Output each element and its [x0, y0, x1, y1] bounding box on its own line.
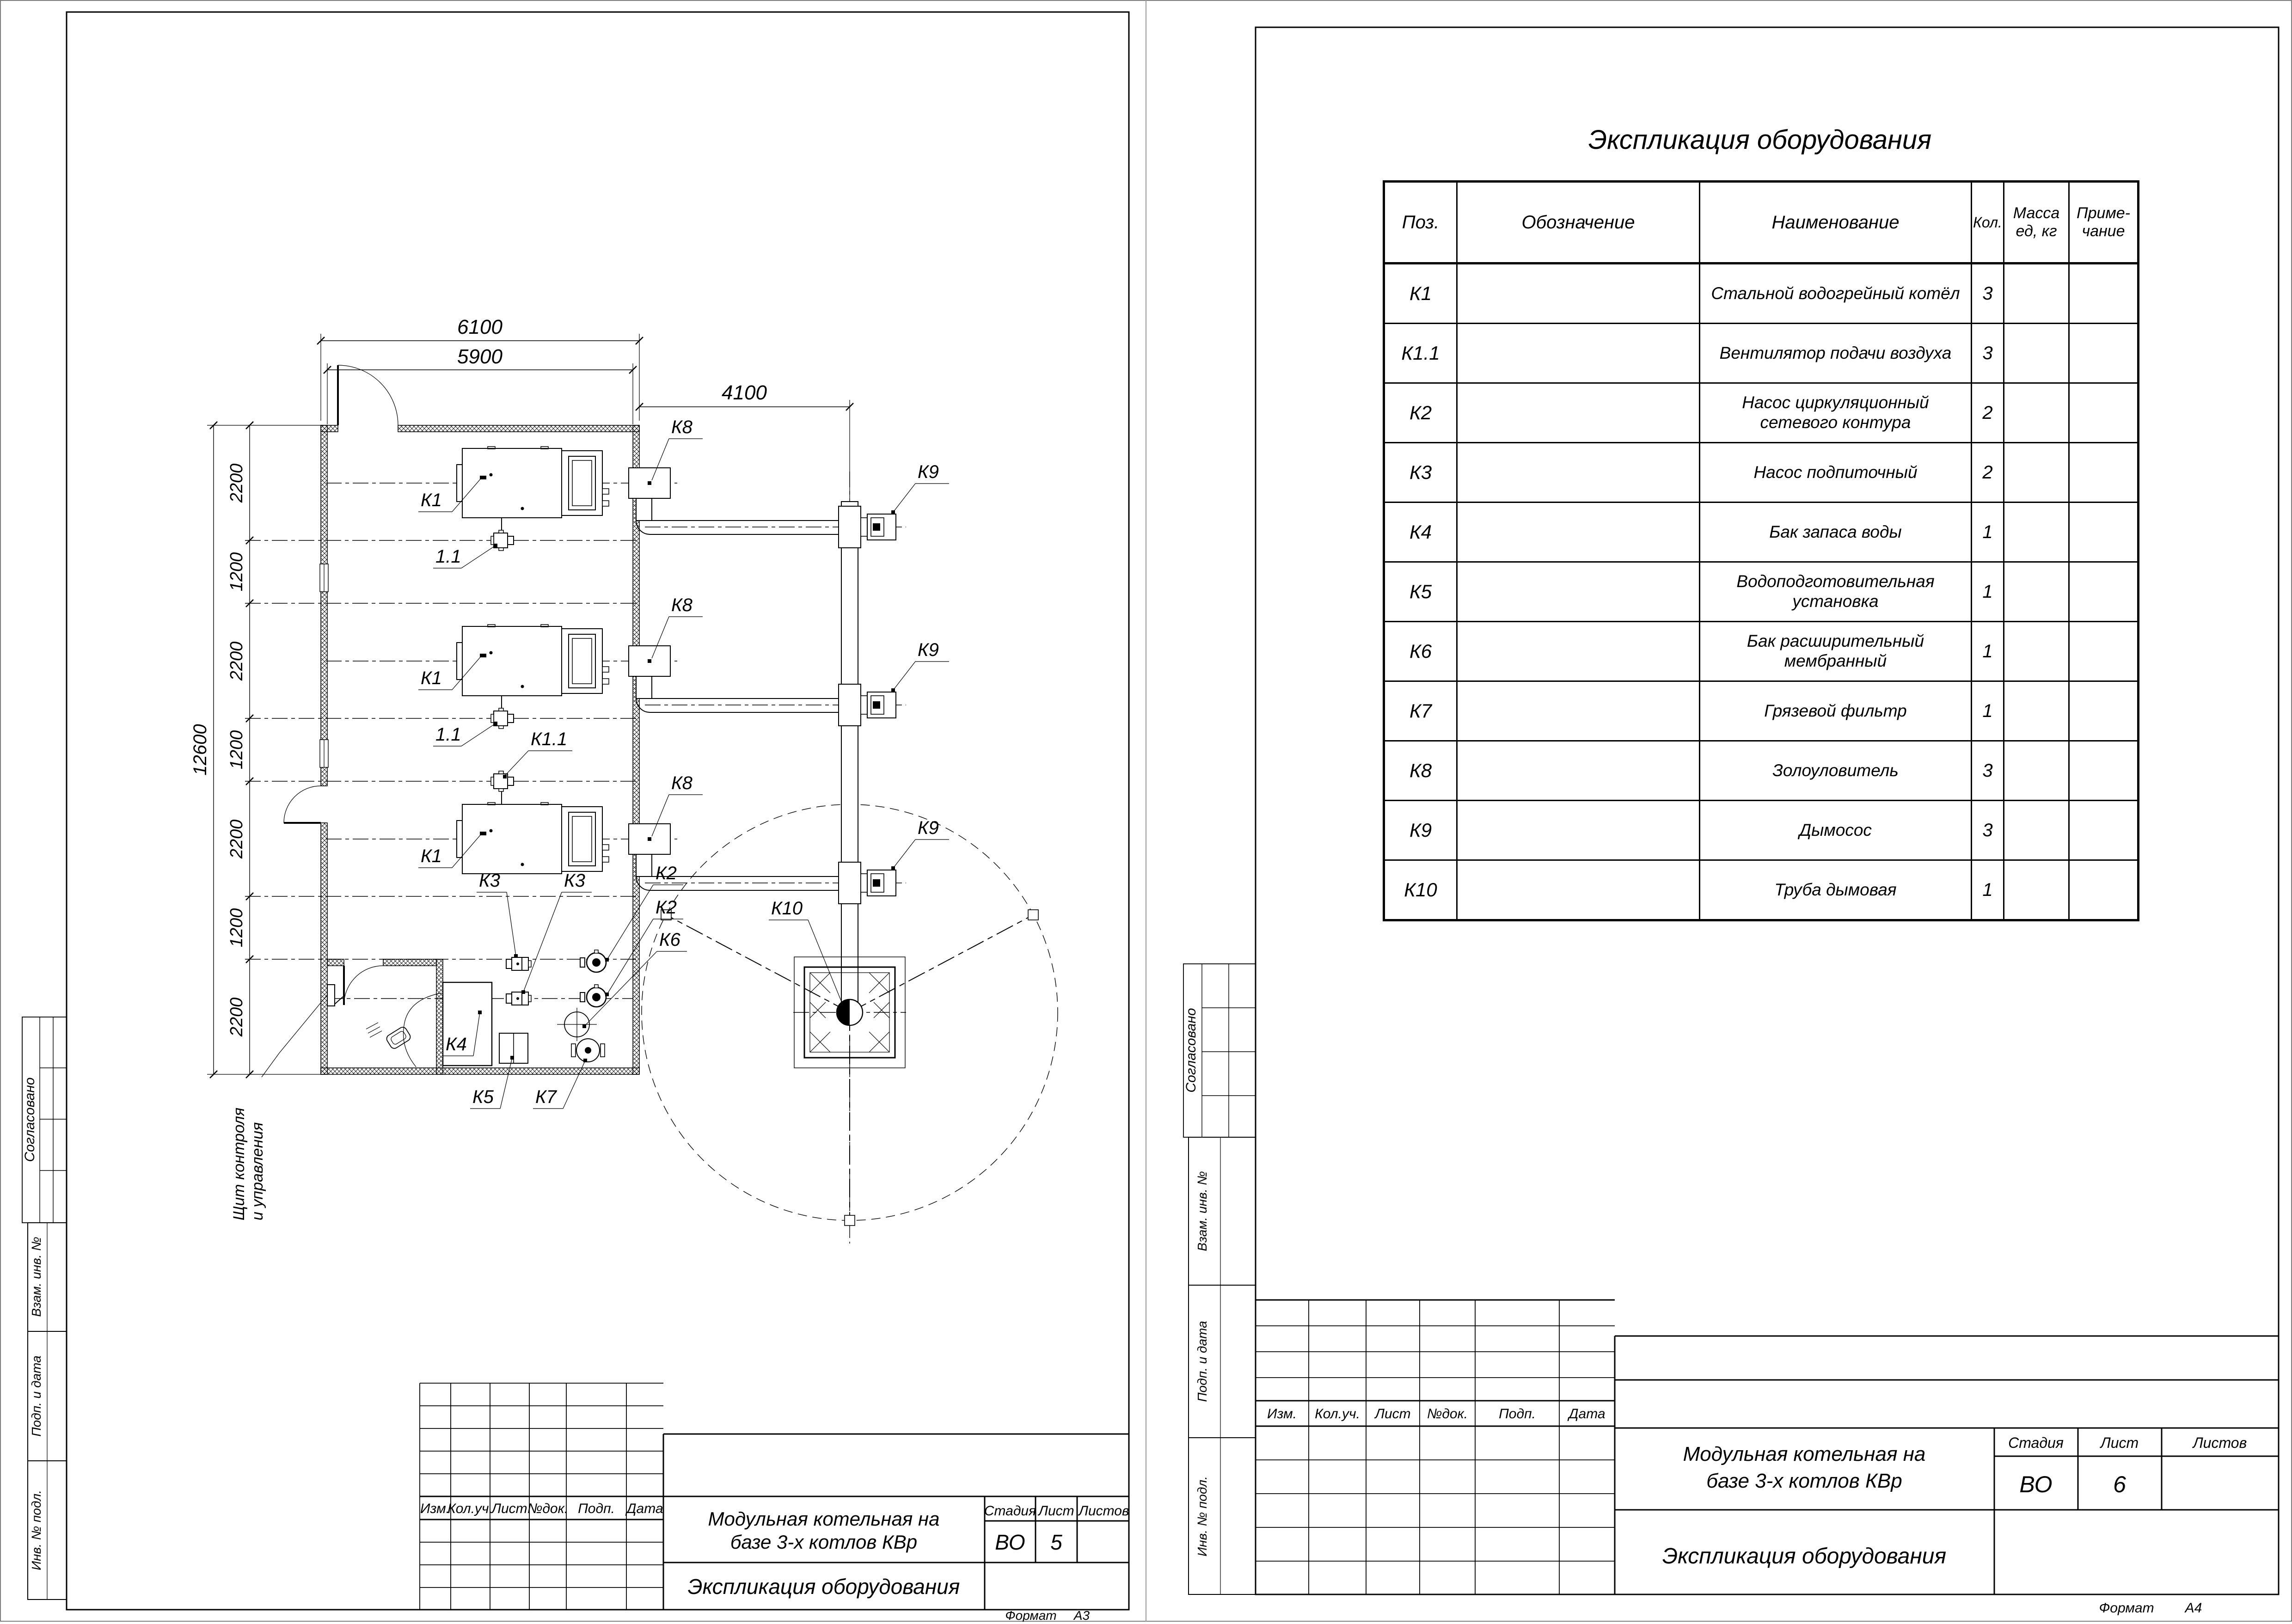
col-qty: Кол. — [1972, 182, 2004, 264]
col-pos: Поз. — [1384, 182, 1457, 264]
table-row: К9Дымосос3 — [1384, 801, 2139, 860]
svg-text:К10: К10 — [771, 898, 803, 919]
cell-name-line1: Вентилятор подачи воздуха — [1700, 343, 1971, 363]
format-value: А3 — [1073, 1608, 1090, 1622]
sidebar-inv: Инв. № подл. — [29, 1490, 43, 1570]
cell-pos: К5 — [1384, 562, 1457, 622]
col-note-line1: Приме- — [2070, 204, 2137, 222]
cell-name: Труба дымовая — [1700, 860, 1972, 920]
sheet-label: Лист — [1037, 1503, 1074, 1519]
svg-text:К8: К8 — [671, 773, 693, 793]
pump-k3-2 — [506, 992, 531, 1005]
fan-2 — [491, 708, 514, 729]
col-note-line2: чание — [2070, 222, 2137, 240]
svg-text:К2: К2 — [656, 897, 677, 918]
doc-title: Экспликация оборудования — [1662, 1544, 1946, 1569]
entrance-door-top — [338, 365, 398, 425]
cell-mass — [2004, 801, 2069, 860]
cell-name-line1: Бак расширительный мембранный — [1700, 631, 1971, 671]
dim-chain-4: 1200 — [227, 730, 246, 770]
col-mass-line1: Масса — [2004, 204, 2068, 222]
cell-note — [2069, 324, 2139, 383]
svg-text:К9: К9 — [918, 640, 939, 660]
sheet-value: 5 — [1050, 1530, 1062, 1554]
cell-pos: К7 — [1384, 681, 1457, 741]
sidebar-soglasovano: Согласовано — [1183, 1008, 1199, 1093]
cell-mass — [2004, 324, 2069, 383]
dim-chain-3: 2200 — [227, 642, 246, 681]
cell-mass — [2004, 264, 2069, 324]
label-k9-2: К9 — [891, 640, 949, 692]
cell-qty: 3 — [1972, 264, 2004, 324]
table-row: К8Золоуловитель3 — [1384, 741, 2139, 801]
cell-note — [2069, 681, 2139, 741]
cell-note — [2069, 264, 2139, 324]
dim-chain-1: 2200 — [227, 464, 246, 503]
cell-name-line1: Водоподготовительная установка — [1700, 572, 1971, 611]
format-label: Формат — [1005, 1608, 1056, 1622]
cell-name: Бак запаса воды — [1700, 503, 1972, 562]
cell-note — [2069, 860, 2139, 920]
dim-total-height: 12600 — [190, 724, 210, 775]
sheets-label: Листов — [2192, 1434, 2247, 1451]
sidebar-inv: Инв. № подл. — [1195, 1476, 1209, 1557]
cell-qty: 2 — [1972, 443, 2004, 503]
svg-text:К3: К3 — [564, 870, 585, 891]
col-name: Наименование — [1700, 182, 1972, 264]
table-row: К7Грязевой фильтр1 — [1384, 681, 2139, 741]
cell-designation — [1457, 860, 1700, 920]
cell-pos: К9 — [1384, 801, 1457, 860]
svg-text:К6: К6 — [659, 930, 681, 950]
flue-system — [629, 468, 896, 1010]
cell-mass — [2004, 443, 2069, 503]
right-sidebar: Согласовано Взам. инв. № Подп. и дата Ин… — [1183, 964, 1256, 1594]
sidebar-vzam: Взам. инв. № — [29, 1237, 43, 1317]
rev-data: Дата — [1567, 1406, 1605, 1422]
pump-k3-1 — [506, 957, 531, 970]
cell-qty: 1 — [1972, 681, 2004, 741]
svg-text:1.1: 1.1 — [435, 546, 461, 567]
svg-text:К1: К1 — [421, 490, 442, 510]
stage-value: ВО — [2019, 1471, 2052, 1497]
cell-name: Вентилятор подачи воздуха — [1700, 324, 1972, 383]
rev-izm: Изм. — [420, 1501, 450, 1516]
svg-text:К1.1: К1.1 — [531, 729, 567, 749]
cell-note — [2069, 801, 2139, 860]
cell-note — [2069, 443, 2139, 503]
cell-name: Насос циркуляционныйсетевого контура — [1700, 383, 1972, 443]
fan-1 — [491, 530, 514, 551]
label-k9-3: К9 — [891, 818, 949, 870]
sidebar-podp: Подп. и дата — [29, 1355, 43, 1436]
cell-mass — [2004, 681, 2069, 741]
cell-mass — [2004, 741, 2069, 801]
cell-pos: К4 — [1384, 503, 1457, 562]
col-note: Приме- чание — [2069, 182, 2139, 264]
rev-ndok: №док. — [527, 1501, 568, 1516]
table-title: Экспликация оборудования — [1588, 125, 1931, 155]
cell-qty: 2 — [1972, 383, 2004, 443]
cell-pos: К1 — [1384, 264, 1457, 324]
cell-name: Дымосос — [1700, 801, 1972, 860]
ash-catcher-1 — [629, 468, 670, 498]
cell-qty: 1 — [1972, 860, 2004, 920]
doc-title: Экспликация оборудования — [688, 1575, 960, 1599]
cell-qty: 3 — [1972, 324, 2004, 383]
rev-koluch: Кол.уч. — [1315, 1406, 1360, 1422]
cell-mass — [2004, 860, 2069, 920]
table-header-row: Поз. Обозначение Наименование Кол. Масса… — [1384, 182, 2139, 264]
svg-text:К7: К7 — [535, 1087, 558, 1107]
rev-podp: Подп. — [1499, 1406, 1536, 1422]
table-row: К10Труба дымовая1 — [1384, 860, 2139, 920]
cell-designation — [1457, 801, 1700, 860]
label-k3-1: К3 — [477, 870, 518, 958]
cell-name-line1: Насос циркуляционный — [1700, 393, 1971, 413]
svg-text:К5: К5 — [472, 1087, 494, 1107]
flue-collector — [841, 502, 858, 1010]
svg-text:К4: К4 — [446, 1034, 467, 1054]
cell-qty: 1 — [1972, 503, 2004, 562]
cell-designation — [1457, 681, 1700, 741]
cell-name-line1: Золоуловитель — [1700, 761, 1971, 781]
stage-label: Стадия — [984, 1503, 1036, 1519]
project-title-line2: базе 3-х котлов КВр — [1706, 1470, 1902, 1492]
svg-text:1.1: 1.1 — [435, 724, 461, 745]
cell-designation — [1457, 562, 1700, 622]
cell-qty: 1 — [1972, 562, 2004, 622]
flue-line-2 — [636, 676, 896, 726]
right-title-block: Изм. Кол.уч. Лист №док. Подп. Дата Модул… — [1256, 1300, 2279, 1616]
cell-name-line1: Насос подпиточный — [1700, 463, 1971, 483]
cell-name-line1: Грязевой фильтр — [1700, 701, 1971, 721]
cell-name-line1: Стальной водогрейный котёл — [1700, 284, 1971, 304]
cell-pos: К8 — [1384, 741, 1457, 801]
svg-text:К3: К3 — [479, 870, 500, 891]
label-k11: К1.1 — [503, 729, 572, 778]
rev-koluch: Кол.уч. — [447, 1501, 493, 1516]
boiler-3 — [457, 803, 609, 874]
pump-k2-1 — [580, 950, 606, 972]
cell-qty: 1 — [1972, 622, 2004, 681]
col-designation: Обозначение — [1457, 182, 1700, 264]
project-title-line1: Модульная котельная на — [1683, 1443, 1926, 1465]
boiler-1 — [457, 447, 609, 518]
svg-text:К2: К2 — [656, 863, 677, 883]
dim-flue-offset: 4100 — [722, 381, 767, 404]
equipment-table: Поз. Обозначение Наименование Кол. Масса… — [1383, 180, 2139, 921]
building-walls — [320, 425, 639, 1074]
format-label: Формат — [2099, 1600, 2154, 1616]
dim-chain-2: 1200 — [227, 552, 246, 592]
pump-k2-2 — [580, 985, 606, 1007]
sink — [366, 993, 441, 1067]
mud-filter-k7 — [571, 1039, 605, 1062]
left-title-block: Изм. Кол.уч. Лист №док. Подп. Дата Модул… — [420, 1383, 1129, 1622]
cell-qty: 3 — [1972, 801, 2004, 860]
sheets-label: Листов — [1078, 1503, 1129, 1519]
cell-note — [2069, 562, 2139, 622]
svg-text:К8: К8 — [671, 417, 693, 437]
flue-line-1 — [636, 498, 896, 548]
left-sidebar: Согласовано Взам. инв. № Подп. и дата Ин… — [22, 1017, 67, 1599]
svg-text:К9: К9 — [918, 818, 939, 838]
cell-pos: К2 — [1384, 383, 1457, 443]
project-title-line2: базе 3-х котлов КВр — [730, 1531, 917, 1553]
cell-name: Золоуловитель — [1700, 741, 1972, 801]
rev-list: Лист — [1374, 1406, 1410, 1422]
stage-label: Стадия — [2008, 1434, 2064, 1451]
guy-anchor — [1028, 910, 1038, 920]
dim-inner-width: 5900 — [457, 345, 503, 368]
label-fan-1: 1.1 — [433, 544, 497, 568]
table-row: К4Бак запаса воды1 — [1384, 503, 2139, 562]
cell-mass — [2004, 622, 2069, 681]
cell-pos: К3 — [1384, 443, 1457, 503]
project-title-line1: Модульная котельная на — [708, 1508, 940, 1530]
table-row: К3Насос подпиточный2 — [1384, 443, 2139, 503]
cell-pos: К1.1 — [1384, 324, 1457, 383]
sidebar-soglasovano: Согласовано — [22, 1078, 37, 1162]
col-mass-line2: ед, кг — [2004, 222, 2068, 240]
rev-data: Дата — [625, 1501, 663, 1516]
sidebar-vzam: Взам. инв. № — [1195, 1171, 1209, 1251]
rev-izm: Изм. — [1267, 1406, 1297, 1422]
format-value: А4 — [2184, 1600, 2202, 1616]
sidebar-podp: Подп. и дата — [1195, 1321, 1209, 1402]
label-k9-1: К9 — [891, 462, 949, 514]
dim-outer-width: 6100 — [457, 316, 503, 338]
table-row: К1Стальной водогрейный котёл3 — [1384, 264, 2139, 324]
dim-chain-6: 1200 — [227, 908, 246, 948]
dim-chain-7: 2200 — [227, 998, 246, 1037]
cell-designation — [1457, 622, 1700, 681]
svg-text:К1: К1 — [421, 668, 442, 688]
cell-mass — [2004, 383, 2069, 443]
guy-anchor — [845, 1215, 855, 1226]
cell-designation — [1457, 383, 1700, 443]
stage-value: ВО — [995, 1530, 1025, 1554]
table-row: К1.1Вентилятор подачи воздуха3 — [1384, 324, 2139, 383]
sheet-value: 6 — [2113, 1471, 2126, 1497]
floor-plan: 6100 5900 2200 1200 2200 1200 2200 1200 … — [190, 316, 1058, 1244]
cell-name-line1: Дымосос — [1700, 821, 1971, 840]
control-panel — [327, 985, 343, 1006]
cell-name: Водоподготовительная установка — [1700, 562, 1972, 622]
cell-name: Грязевой фильтр — [1700, 681, 1972, 741]
cell-designation — [1457, 443, 1700, 503]
cell-designation — [1457, 503, 1700, 562]
table-row: К6Бак расширительный мембранный1 — [1384, 622, 2139, 681]
svg-text:К8: К8 — [671, 595, 693, 615]
cell-name: Стальной водогрейный котёл — [1700, 264, 1972, 324]
cell-name-line1: Бак запаса воды — [1700, 522, 1971, 542]
cell-note — [2069, 503, 2139, 562]
label-k7: К7 — [533, 1059, 587, 1109]
expansion-tank-k6 — [557, 1008, 597, 1041]
dim-chain-5: 2200 — [227, 820, 246, 859]
cell-pos: К6 — [1384, 622, 1457, 681]
ash-catcher-3 — [629, 824, 670, 854]
col-mass: Масса ед, кг — [2004, 182, 2069, 264]
cell-pos: К10 — [1384, 860, 1457, 920]
cell-name: Насос подпиточный — [1700, 443, 1972, 503]
boiler-2 — [457, 625, 609, 696]
cell-name-line1: Труба дымовая — [1700, 880, 1971, 900]
cell-designation — [1457, 324, 1700, 383]
cell-qty: 3 — [1972, 741, 2004, 801]
table-row: К2Насос циркуляционныйсетевого контура2 — [1384, 383, 2139, 443]
cell-designation — [1457, 741, 1700, 801]
cell-mass — [2004, 562, 2069, 622]
ash-catcher-2 — [629, 646, 670, 676]
rev-ndok: №док. — [1427, 1406, 1468, 1422]
cell-name-line2: сетевого контура — [1700, 413, 1971, 433]
cell-designation — [1457, 264, 1700, 324]
cell-mass — [2004, 503, 2069, 562]
entrance-door-left — [284, 786, 321, 823]
drawing-page: { "plan": { "dims": { "outer_width": "61… — [0, 0, 2292, 1622]
cell-note — [2069, 383, 2139, 443]
cell-note — [2069, 741, 2139, 801]
svg-text:К1: К1 — [421, 846, 442, 866]
svg-text:и управления: и управления — [249, 1122, 266, 1220]
cell-name: Бак расширительный мембранный — [1700, 622, 1972, 681]
label-k3-2: К3 — [521, 870, 592, 994]
cell-note — [2069, 622, 2139, 681]
rev-list: Лист — [490, 1501, 527, 1516]
svg-text:Щит контроля: Щит контроля — [230, 1108, 248, 1220]
fan-3 — [491, 771, 514, 791]
rev-podp: Подп. — [578, 1501, 615, 1516]
label-fan-2: 1.1 — [433, 722, 497, 746]
svg-text:К9: К9 — [918, 462, 939, 482]
sheet-label: Лист — [2100, 1434, 2139, 1451]
vestibule-door — [344, 966, 383, 1005]
table-row: К5Водоподготовительная установка1 — [1384, 562, 2139, 622]
label-k10: К10 — [769, 898, 843, 1006]
